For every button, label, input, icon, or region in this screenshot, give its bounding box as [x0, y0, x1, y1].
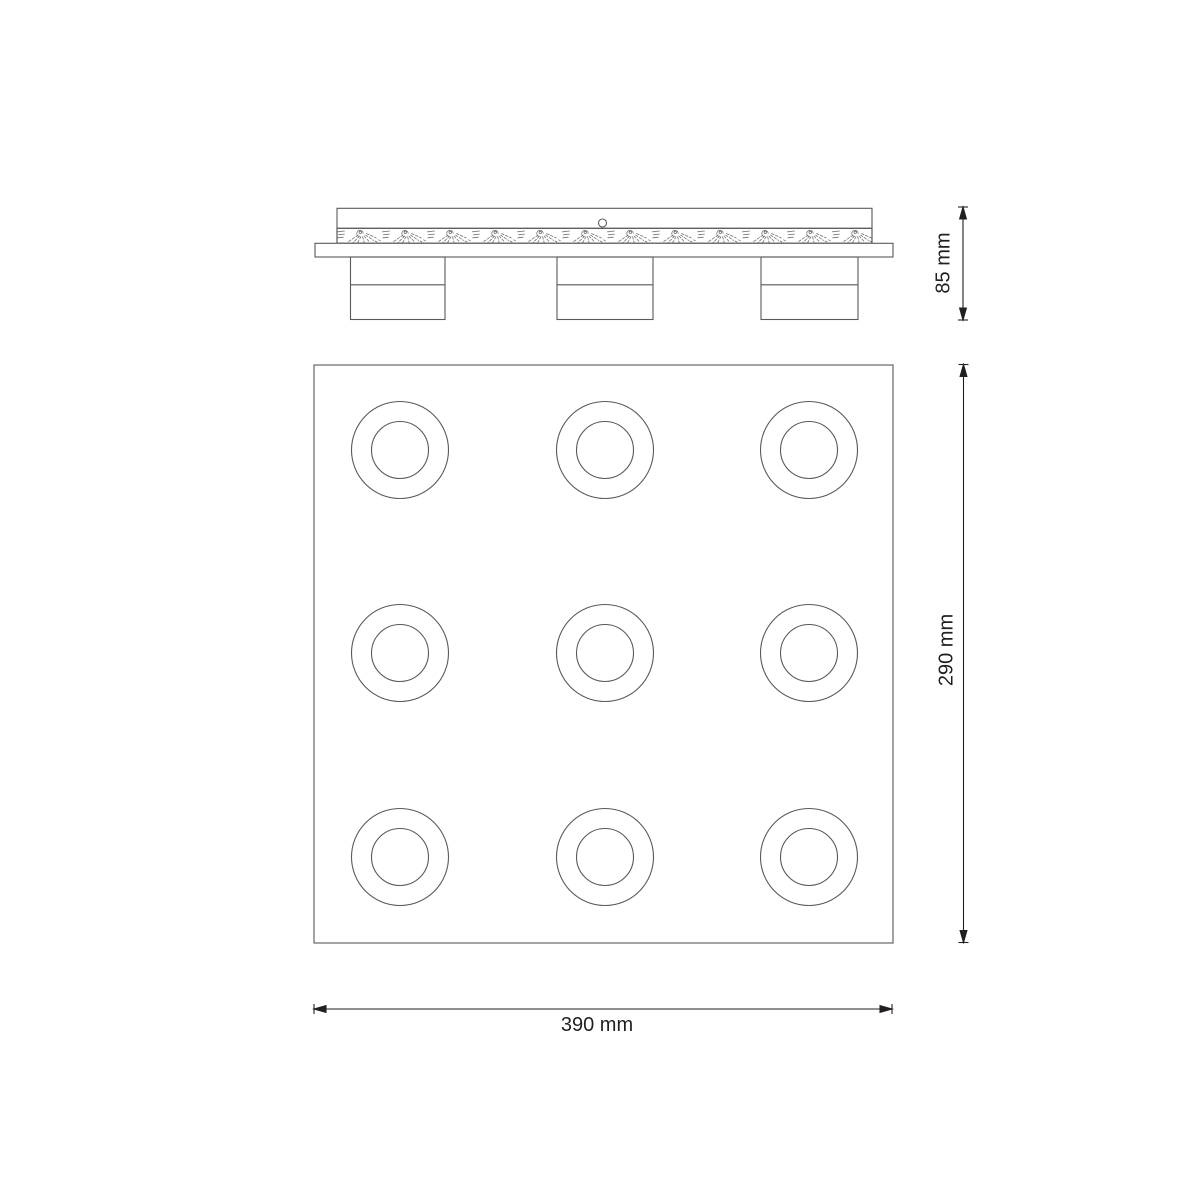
dimension-lines [314, 207, 969, 1014]
technical-drawing: 85 mm 290 mm 390 mm [0, 0, 1200, 1200]
spotlight-inner-ring [577, 422, 634, 479]
lamp-head-cylinder-right [761, 257, 858, 320]
spotlight-inner-ring [372, 625, 429, 682]
mounting-hole [599, 219, 607, 227]
spotlight-outer-ring [761, 605, 858, 702]
plan-plate-outline [314, 365, 893, 943]
dimension-390mm [314, 1004, 892, 1014]
lamp-head-cylinder-left [351, 257, 446, 320]
arrowhead-down-icon [960, 931, 967, 943]
arrowhead-up-icon [960, 365, 967, 377]
crystal-decor-band [337, 228, 872, 243]
dimension-290mm [959, 365, 969, 943]
lamp-head-cylinder-middle [557, 257, 653, 320]
spotlight-outer-ring [761, 809, 858, 906]
spotlight-inner-ring [781, 829, 838, 886]
spotlight-inner-ring [372, 829, 429, 886]
spotlight-outer-ring [352, 809, 449, 906]
dimension-label-85mm: 85 mm [932, 232, 954, 293]
drawing-canvas: 85 mm 290 mm 390 mm [0, 0, 1200, 1200]
spotlight-inner-ring [577, 625, 634, 682]
spotlight-outer-ring [557, 605, 654, 702]
spotlight-inner-ring [781, 625, 838, 682]
spotlight-grid [352, 402, 858, 906]
spotlight-outer-ring [557, 809, 654, 906]
arrowhead-up-icon [960, 207, 967, 219]
spotlight-outer-ring [352, 605, 449, 702]
side-view [315, 208, 893, 319]
spotlight-inner-ring [577, 829, 634, 886]
spotlight-outer-ring [352, 402, 449, 499]
spotlight-inner-ring [372, 422, 429, 479]
dimension-label-290mm: 290 mm [935, 614, 957, 686]
arrowhead-down-icon [960, 308, 967, 320]
spotlight-inner-ring [781, 422, 838, 479]
spotlight-outer-ring [761, 402, 858, 499]
dimension-label-390mm: 390 mm [561, 1014, 633, 1036]
dimension-85mm [958, 207, 968, 320]
spotlight-outer-ring [557, 402, 654, 499]
plan-view [314, 365, 893, 943]
arrowhead-left-icon [314, 1006, 326, 1013]
canopy-plate [315, 243, 893, 257]
arrowhead-right-icon [880, 1006, 892, 1013]
